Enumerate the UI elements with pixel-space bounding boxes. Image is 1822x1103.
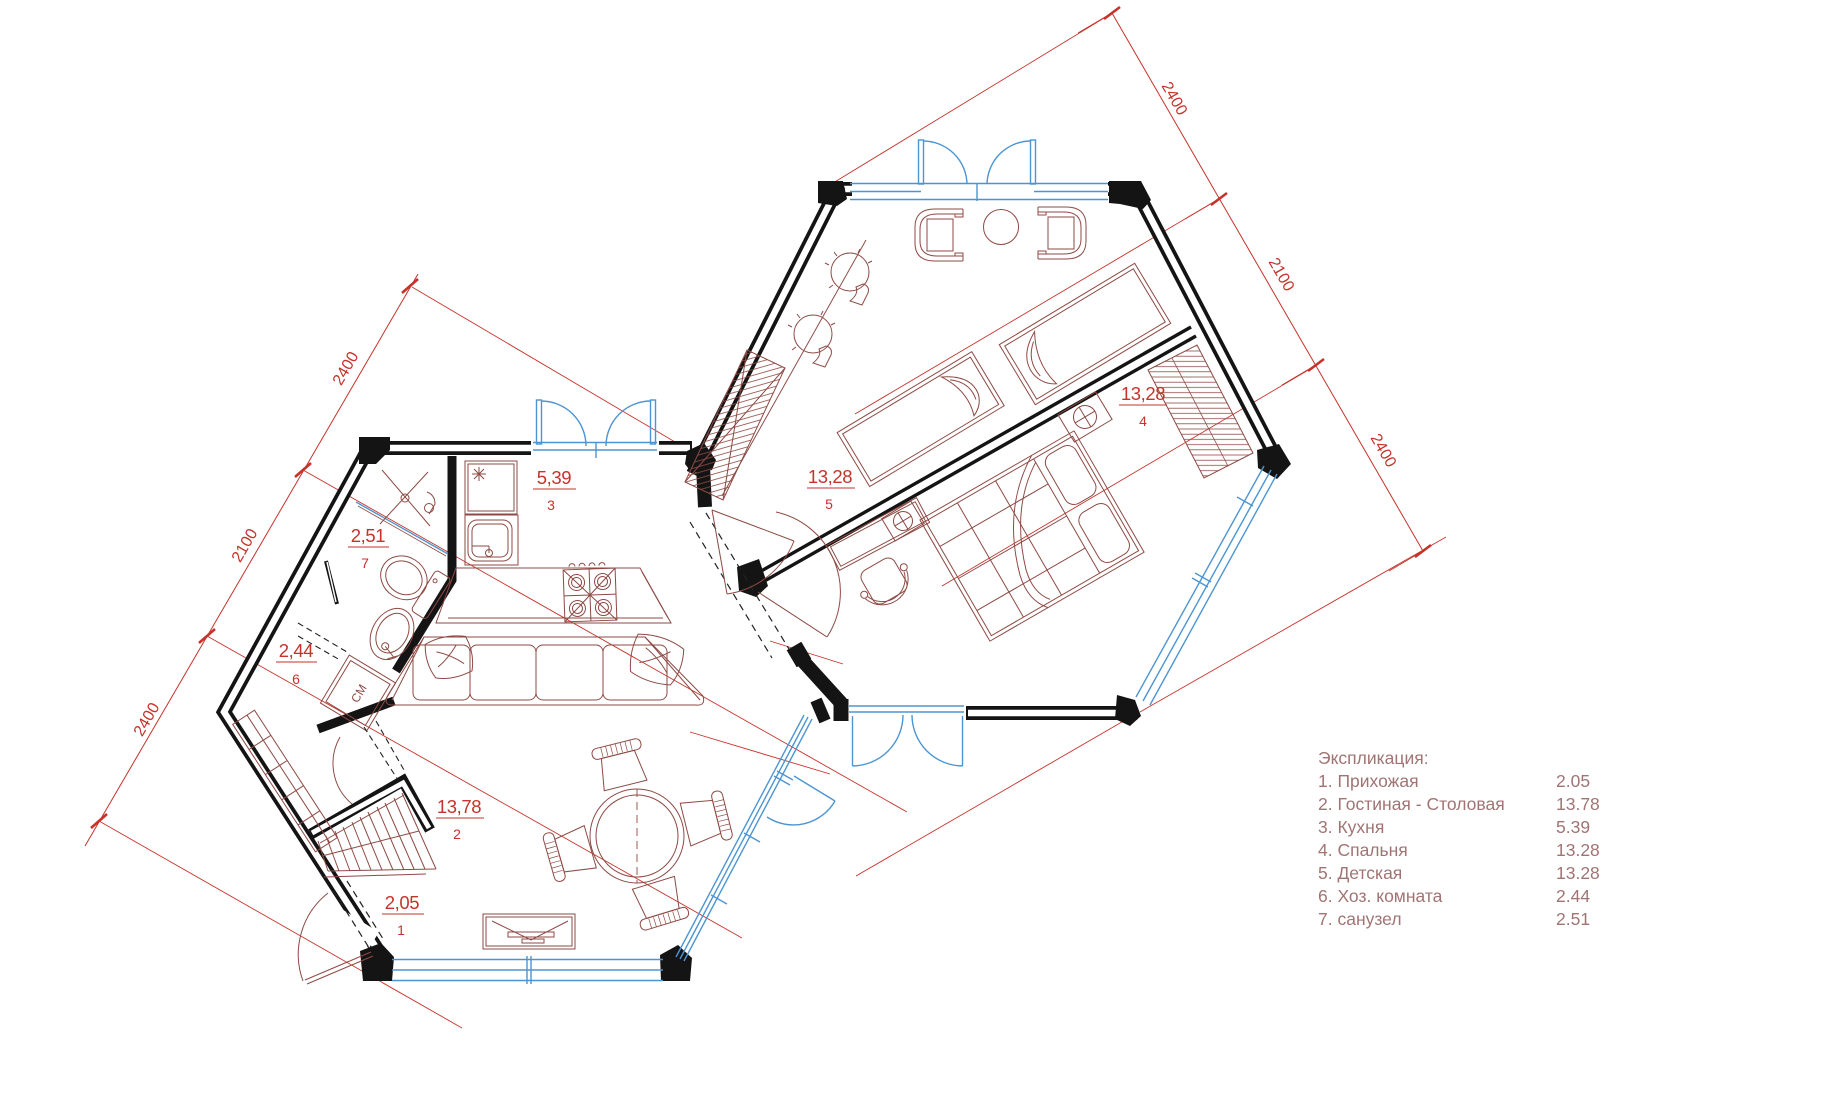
svg-text:13,28: 13,28 xyxy=(1121,383,1165,404)
svg-text:3. Кухня: 3. Кухня xyxy=(1318,817,1384,837)
svg-text:4. Спальня: 4. Спальня xyxy=(1318,840,1408,860)
svg-text:13,28: 13,28 xyxy=(808,466,852,487)
svg-text:5. Детская: 5. Детская xyxy=(1318,863,1402,883)
svg-text:6. Хоз. комната: 6. Хоз. комната xyxy=(1318,886,1443,906)
svg-text:2: 2 xyxy=(453,826,461,842)
svg-text:2,51: 2,51 xyxy=(351,525,386,546)
svg-text:13.78: 13.78 xyxy=(1556,794,1600,814)
svg-text:6: 6 xyxy=(292,671,300,687)
svg-text:7: 7 xyxy=(361,555,369,571)
svg-text:5.39: 5.39 xyxy=(1556,817,1590,837)
svg-text:2.51: 2.51 xyxy=(1556,909,1590,929)
svg-text:3: 3 xyxy=(547,497,555,513)
svg-text:5: 5 xyxy=(825,496,833,512)
svg-text:2.05: 2.05 xyxy=(1556,771,1590,791)
svg-text:2,05: 2,05 xyxy=(385,892,420,913)
svg-text:Экспликация:: Экспликация: xyxy=(1318,748,1429,768)
svg-text:4: 4 xyxy=(1139,413,1147,429)
svg-text:2.44: 2.44 xyxy=(1556,886,1590,906)
svg-text:13.28: 13.28 xyxy=(1556,863,1600,883)
svg-text:2. Гостиная - Столовая: 2. Гостиная - Столовая xyxy=(1318,794,1505,814)
svg-text:1. Прихожая: 1. Прихожая xyxy=(1318,771,1419,791)
svg-text:13,78: 13,78 xyxy=(437,796,481,817)
svg-text:7. санузел: 7. санузел xyxy=(1318,909,1402,929)
svg-text:1: 1 xyxy=(397,922,405,938)
svg-text:13.28: 13.28 xyxy=(1556,840,1600,860)
svg-text:2,44: 2,44 xyxy=(279,640,314,661)
svg-text:5,39: 5,39 xyxy=(537,467,572,488)
